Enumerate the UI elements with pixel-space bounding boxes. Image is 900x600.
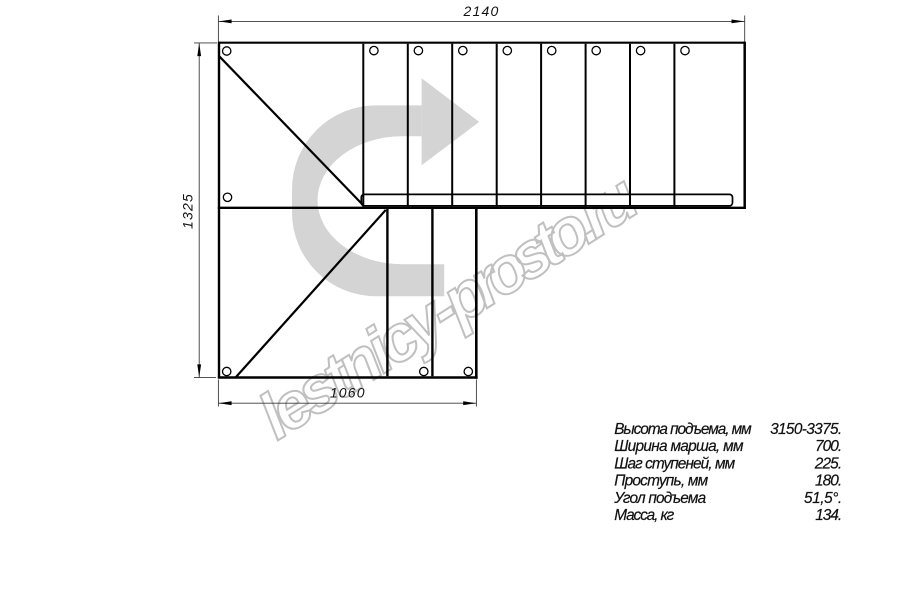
svg-text:225.: 225. [814,455,843,472]
svg-text:180.: 180. [815,473,842,490]
svg-text:Проступь, мм: Проступь, мм [614,473,708,490]
svg-text:1060: 1060 [330,385,366,401]
svg-text:3150-3375.: 3150-3375. [770,421,842,438]
svg-text:1325: 1325 [180,193,196,229]
svg-text:Шаг ступеней, мм: Шаг ступеней, мм [614,455,735,472]
svg-text:2140: 2140 [463,3,500,19]
svg-text:134.: 134. [815,507,842,524]
svg-text:Высота подъема, мм: Высота подъема, мм [614,421,752,438]
svg-text:700.: 700. [815,438,842,455]
svg-text:Ширина марша, мм: Ширина марша, мм [614,438,744,455]
svg-text:Масса, кг: Масса, кг [614,507,674,524]
svg-text:51,5°.: 51,5°. [804,490,842,507]
svg-text:Угол подъема: Угол подъема [613,490,706,507]
